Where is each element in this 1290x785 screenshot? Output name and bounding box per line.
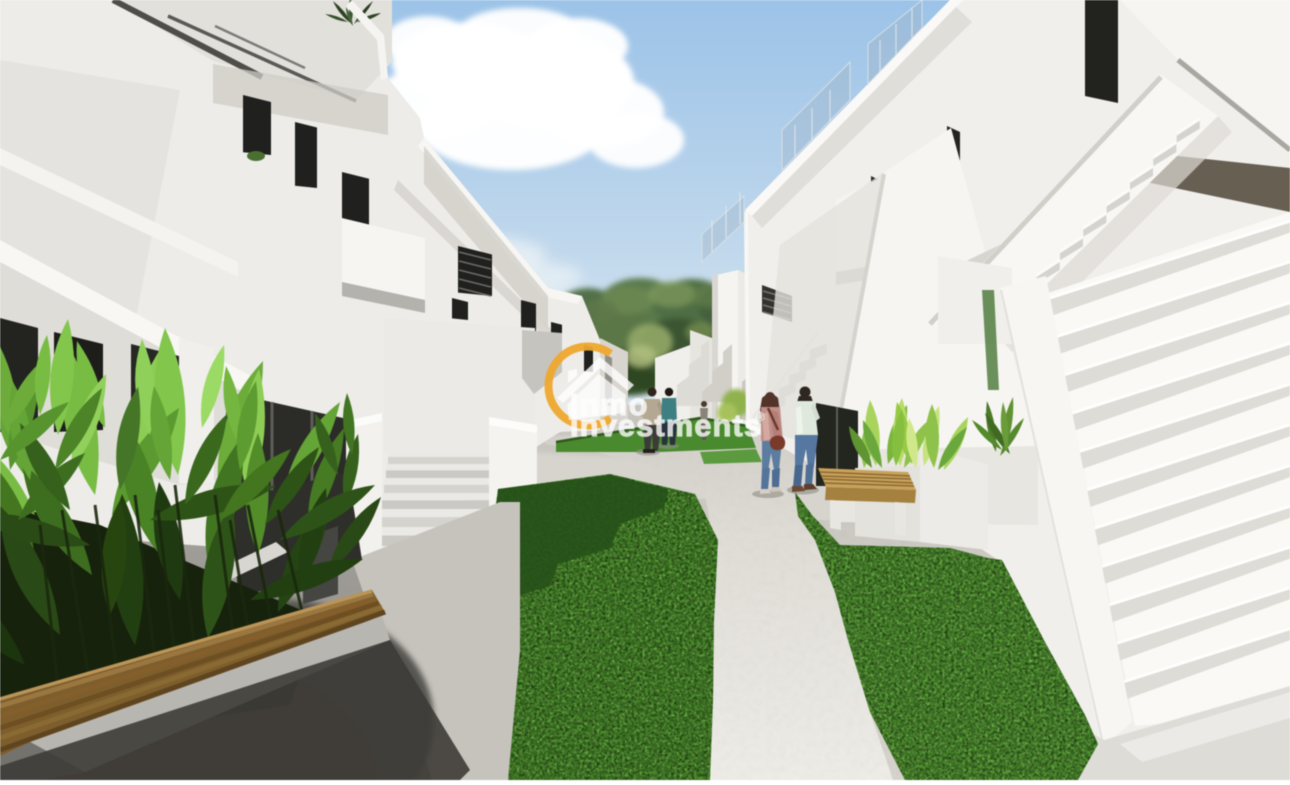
svg-text:®: ® xyxy=(756,410,765,424)
svg-text:Investments: Investments xyxy=(570,409,762,443)
